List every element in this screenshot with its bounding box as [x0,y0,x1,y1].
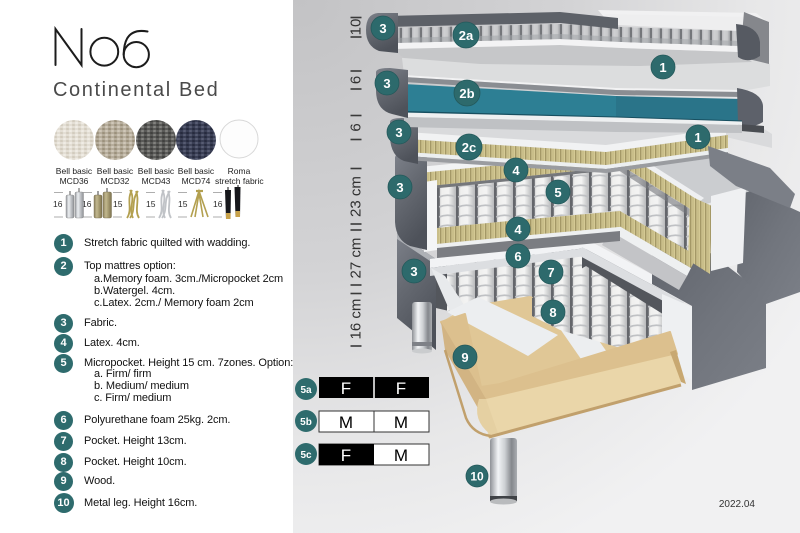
svg-text:1: 1 [659,60,666,75]
svg-text:3: 3 [396,180,403,195]
svg-text:1: 1 [694,130,701,145]
svg-text:3: 3 [383,76,390,91]
svg-text:3: 3 [379,21,386,36]
svg-text:6: 6 [514,249,521,264]
svg-text:M: M [339,413,353,432]
svg-text:10: 10 [348,19,365,36]
svg-text:7: 7 [547,265,554,280]
svg-text:2b: 2b [459,86,474,101]
svg-text:6: 6 [348,123,365,131]
svg-text:M: M [394,413,408,432]
svg-text:F: F [341,446,351,465]
svg-text:3: 3 [395,125,402,140]
svg-text:2c: 2c [462,140,476,155]
svg-text:5a: 5a [300,385,312,396]
svg-text:M: M [394,446,408,465]
svg-text:10: 10 [470,470,484,484]
svg-text:6: 6 [348,76,365,84]
svg-text:27 cm: 27 cm [348,238,365,279]
svg-text:5b: 5b [300,417,312,428]
svg-text:F: F [341,379,351,398]
svg-text:4: 4 [514,222,522,237]
svg-text:2a: 2a [459,28,474,43]
svg-text:8: 8 [549,305,556,320]
svg-text:2022.04: 2022.04 [719,499,756,510]
svg-text:F: F [396,379,406,398]
svg-text:5: 5 [554,185,561,200]
svg-text:9: 9 [461,350,468,365]
svg-text:16 cm: 16 cm [348,299,365,340]
svg-text:5c: 5c [300,450,312,461]
svg-text:3: 3 [410,264,417,279]
svg-text:4: 4 [512,163,520,178]
svg-text:23 cm: 23 cm [348,176,365,217]
